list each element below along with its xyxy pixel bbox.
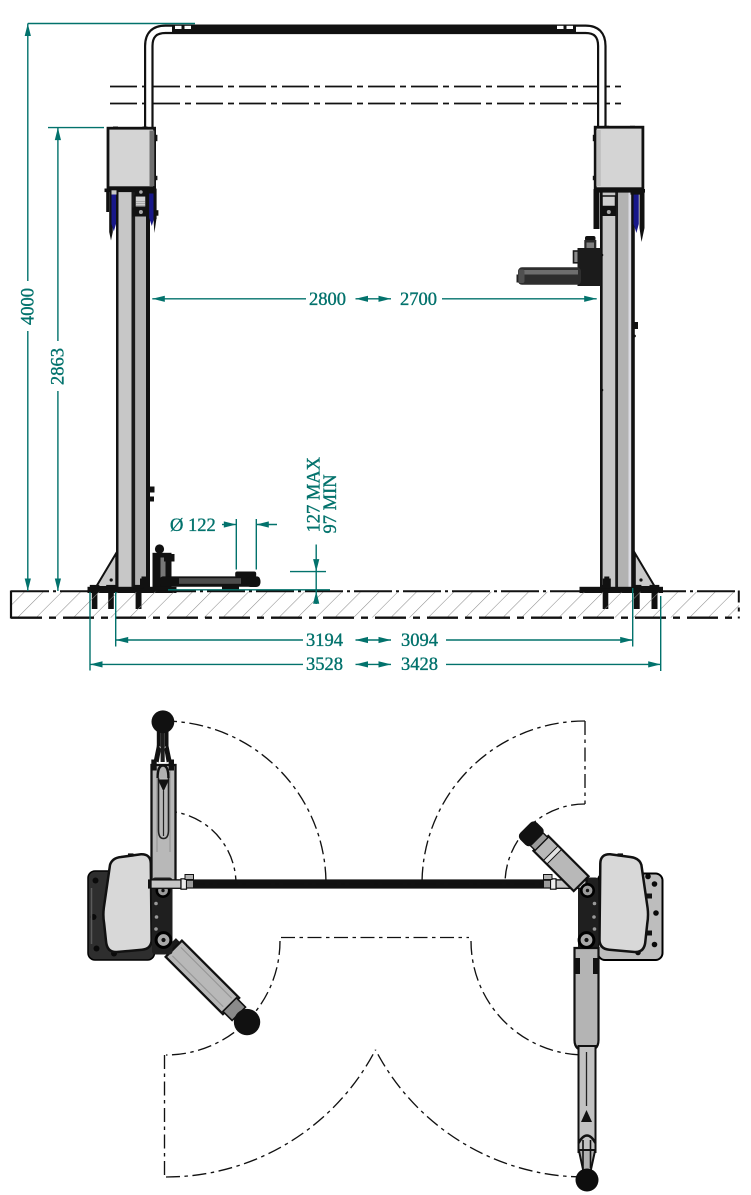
- svg-text:3528: 3528: [306, 655, 343, 675]
- svg-text:3428: 3428: [401, 655, 438, 675]
- svg-text:4000: 4000: [19, 288, 39, 325]
- svg-text:3194: 3194: [306, 631, 343, 651]
- svg-text:2800: 2800: [309, 290, 346, 310]
- svg-text:3094: 3094: [401, 631, 438, 651]
- svg-text:97 MIN: 97 MIN: [321, 474, 341, 533]
- svg-text:2700: 2700: [400, 290, 437, 310]
- svg-text:2863: 2863: [49, 348, 69, 385]
- svg-text:Ø 122: Ø 122: [170, 516, 216, 536]
